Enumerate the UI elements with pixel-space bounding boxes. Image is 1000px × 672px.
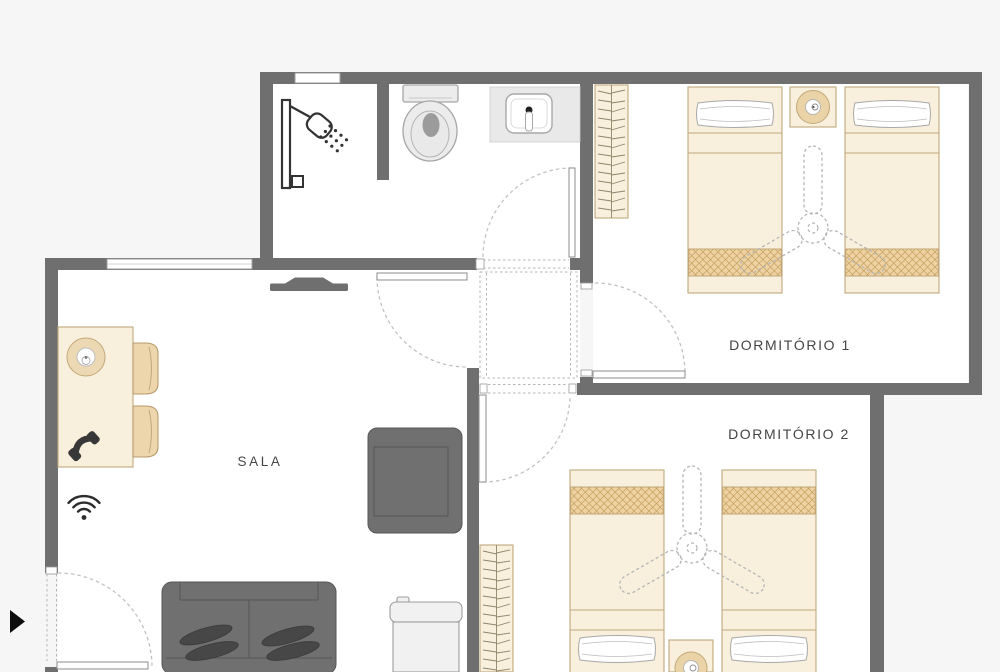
floor-plan: SALA DORMITÓRIO 1 DORMITÓRIO 2 [0,0,1000,672]
bathroom-window [295,73,340,83]
hallway-floor [477,258,580,395]
entrance-door-leaf [57,662,148,669]
wall-dorm-divider [577,383,982,395]
wall-bathroom-left [260,72,273,270]
door-jamb [569,384,576,393]
dorm1-nightstand [790,87,836,127]
bathroom-door-leaf [569,168,575,257]
dorm2-bed-left [570,470,664,672]
dorm2-wardrobe [480,545,513,672]
armchair [368,428,462,533]
dormitorio-2-label: DORMITÓRIO 2 [728,426,850,442]
toilet-icon [403,85,458,161]
wall-left-exterior [45,258,58,573]
wall-top [260,72,982,84]
sofa [162,582,336,672]
wall-sala-dorm2-divider [467,368,479,672]
dining-table [58,327,133,467]
door-jamb [581,370,592,376]
washing-machine [390,597,462,672]
door-jamb [46,567,57,574]
dorm2-bed-right [722,470,816,672]
door-jamb [476,259,484,269]
wall-bathroom-partition [377,84,389,180]
toilet-flush [423,113,440,137]
sala-label: SALA [238,454,283,469]
wall-bathroom-right [580,72,593,283]
wall-dorm2-right [870,383,884,672]
dorm2-nightstand [669,640,713,672]
dormitorio-1-label: DORMITÓRIO 1 [729,337,851,353]
door-jamb [581,283,592,289]
dining-chair [133,343,158,394]
wall-left-below-door [45,667,58,672]
dorm1-bed-left [688,87,782,293]
dorm1-wardrobe [595,85,628,218]
dorm1-bed-right [845,87,939,293]
wall-dorm1-left-corner [580,377,593,395]
sink-icon [490,87,580,142]
dorm2-door-leaf [479,395,486,482]
dorm1-door-leaf [593,371,685,378]
hallway-passage-floor [467,270,477,368]
floor-plan-stage: SALA DORMITÓRIO 1 DORMITÓRIO 2 [0,0,1000,672]
door-jamb [480,384,487,393]
sala-hall-door-leaf [377,273,467,280]
dining-chair [133,406,158,457]
wall-dorm1-right [969,72,982,395]
